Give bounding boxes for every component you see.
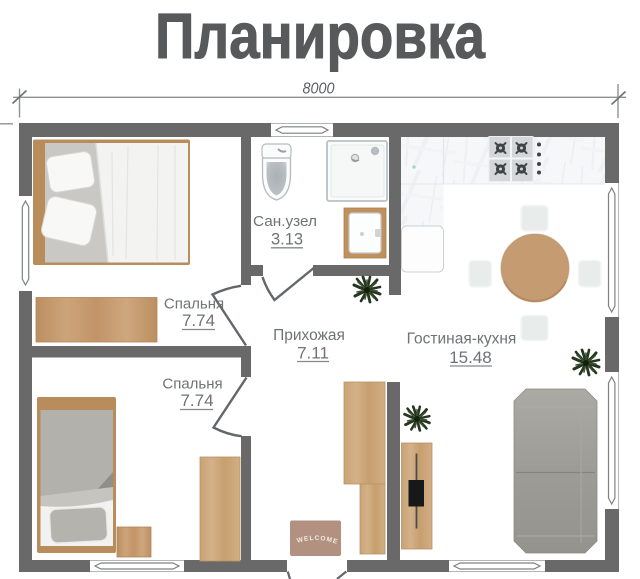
svg-text:Планировка: Планировка: [155, 0, 485, 72]
svg-text:Гостиная-кухня: Гостиная-кухня: [407, 331, 517, 348]
svg-text:8000: 8000: [303, 81, 335, 98]
svg-text:7.74: 7.74: [180, 391, 213, 410]
svg-text:7.11: 7.11: [297, 344, 329, 363]
svg-text:3.13: 3.13: [271, 231, 303, 249]
svg-text:Сан.узел: Сан.узел: [253, 213, 317, 230]
svg-text:Спальня: Спальня: [164, 296, 224, 313]
svg-text:Прихожая: Прихожая: [273, 327, 345, 344]
svg-text:7.74: 7.74: [182, 311, 215, 330]
svg-text:15.48: 15.48: [449, 348, 492, 367]
svg-text:Спальня: Спальня: [162, 376, 222, 393]
